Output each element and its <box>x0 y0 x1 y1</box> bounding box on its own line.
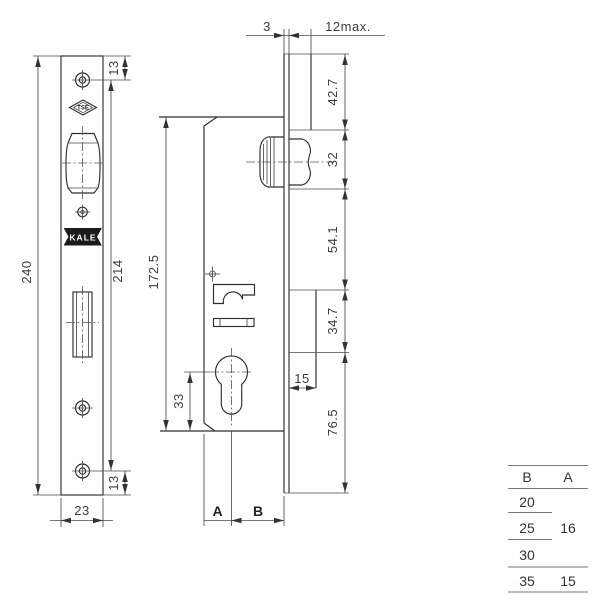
screw-hole-middle <box>72 398 93 418</box>
roller-opening-front <box>62 126 102 201</box>
arrowhead <box>187 373 193 383</box>
dim-23-label: 23 <box>74 503 89 518</box>
case-bottom-chamfer <box>204 423 215 431</box>
arrowhead <box>342 120 348 130</box>
label-backset-b: B <box>253 503 263 519</box>
arrowhead <box>342 353 348 363</box>
dim-backset-ab: A B <box>204 431 284 526</box>
table-cell-b3: 30 <box>519 547 535 563</box>
tse-logo: TSE <box>70 100 97 115</box>
side-view-dimensions: 3 12max. 172.5 33 15 <box>146 19 385 526</box>
arrowhead <box>342 131 348 141</box>
arrowhead <box>289 385 299 391</box>
tse-logo-text: TSE <box>77 106 89 112</box>
table-cell-b4: 35 <box>519 573 535 589</box>
euro-cylinder-profile <box>210 348 252 426</box>
arrowhead <box>35 57 41 67</box>
screw-hole-bottom <box>72 461 131 481</box>
arrowhead <box>274 518 284 524</box>
label-backset-a: A <box>212 503 222 519</box>
arrowhead <box>122 57 128 67</box>
dim-54-1-label: 54.1 <box>325 226 340 253</box>
dim-12max-label: 12max. <box>325 19 371 34</box>
lock-technical-drawing: TSE KALE <box>0 0 600 600</box>
dim-15: 15 <box>289 371 316 391</box>
arrowhead <box>122 69 128 79</box>
arrowhead <box>342 190 348 200</box>
case-top-chamfer <box>204 117 217 126</box>
arrowhead <box>122 472 128 482</box>
table-header-a: A <box>563 469 573 485</box>
arrowhead <box>232 518 242 524</box>
dim-214: 214 <box>108 80 125 471</box>
kale-logo-text: KALE <box>69 233 96 243</box>
dim-76-5-label: 76.5 <box>325 409 340 436</box>
latch-cam-part <box>214 285 255 304</box>
arrowhead <box>187 420 193 430</box>
faceplate-outline <box>61 56 103 495</box>
datum-cross-marker <box>205 267 220 282</box>
dim-right-column: 42.7 32 54.1 34.7 76.5 <box>325 54 348 493</box>
dim-23: 23 <box>50 498 113 527</box>
dim-172-5-label: 172.5 <box>146 254 161 289</box>
arrowhead <box>122 484 128 494</box>
dim-33-label: 33 <box>171 393 186 408</box>
dim-13-top-label: 13 <box>106 60 121 75</box>
arrowhead <box>342 55 348 65</box>
dim-3-and-12max: 3 12max. <box>246 19 385 54</box>
lever-slot-part <box>214 319 255 327</box>
table-cell-b2: 25 <box>519 520 535 536</box>
kale-logo: KALE <box>65 229 102 246</box>
arrowhead <box>93 518 103 524</box>
table-cell-a4: 15 <box>560 573 576 589</box>
dim-13-top: 13 <box>106 56 128 80</box>
arrowhead <box>61 518 71 524</box>
dim-13-bottom-label: 13 <box>106 475 121 490</box>
dim-34-7-label: 34.7 <box>325 307 340 334</box>
technical-drawing-page: TSE KALE <box>0 0 600 600</box>
arrowhead <box>342 291 348 301</box>
table-header-b: B <box>522 469 531 485</box>
dim-240-label: 240 <box>19 260 34 283</box>
dim-172-5: 172.5 <box>146 117 169 431</box>
dim-32-label: 32 <box>325 152 340 167</box>
arrowhead <box>163 420 169 430</box>
dim-3-label: 3 <box>263 19 271 34</box>
arrowhead <box>108 460 114 470</box>
arrowhead <box>342 179 348 189</box>
dim-240: 240 <box>19 56 41 495</box>
arrowhead <box>342 483 348 493</box>
arrowhead <box>35 484 41 494</box>
dim-15-label: 15 <box>294 371 309 386</box>
arrowhead <box>342 342 348 352</box>
arrowhead <box>342 280 348 290</box>
dim-214-label: 214 <box>110 259 125 282</box>
arrowhead <box>108 81 114 91</box>
table-cell-b1: 20 <box>519 494 535 510</box>
arrowhead <box>163 118 169 128</box>
arrowhead <box>274 33 284 39</box>
table-cell-a-merged: 16 <box>560 520 576 536</box>
screw-hole-small <box>75 205 90 220</box>
dim-13-bottom: 13 <box>106 471 128 495</box>
arrowhead <box>306 385 316 391</box>
screw-hole-top <box>72 70 131 90</box>
dim-42-7-label: 42.7 <box>325 78 340 105</box>
deadbolt-slot-front <box>66 286 99 363</box>
side-view-lock-case <box>159 54 349 493</box>
arrowhead <box>289 33 299 39</box>
backset-size-table: B A 20 25 16 30 35 15 <box>508 466 588 593</box>
